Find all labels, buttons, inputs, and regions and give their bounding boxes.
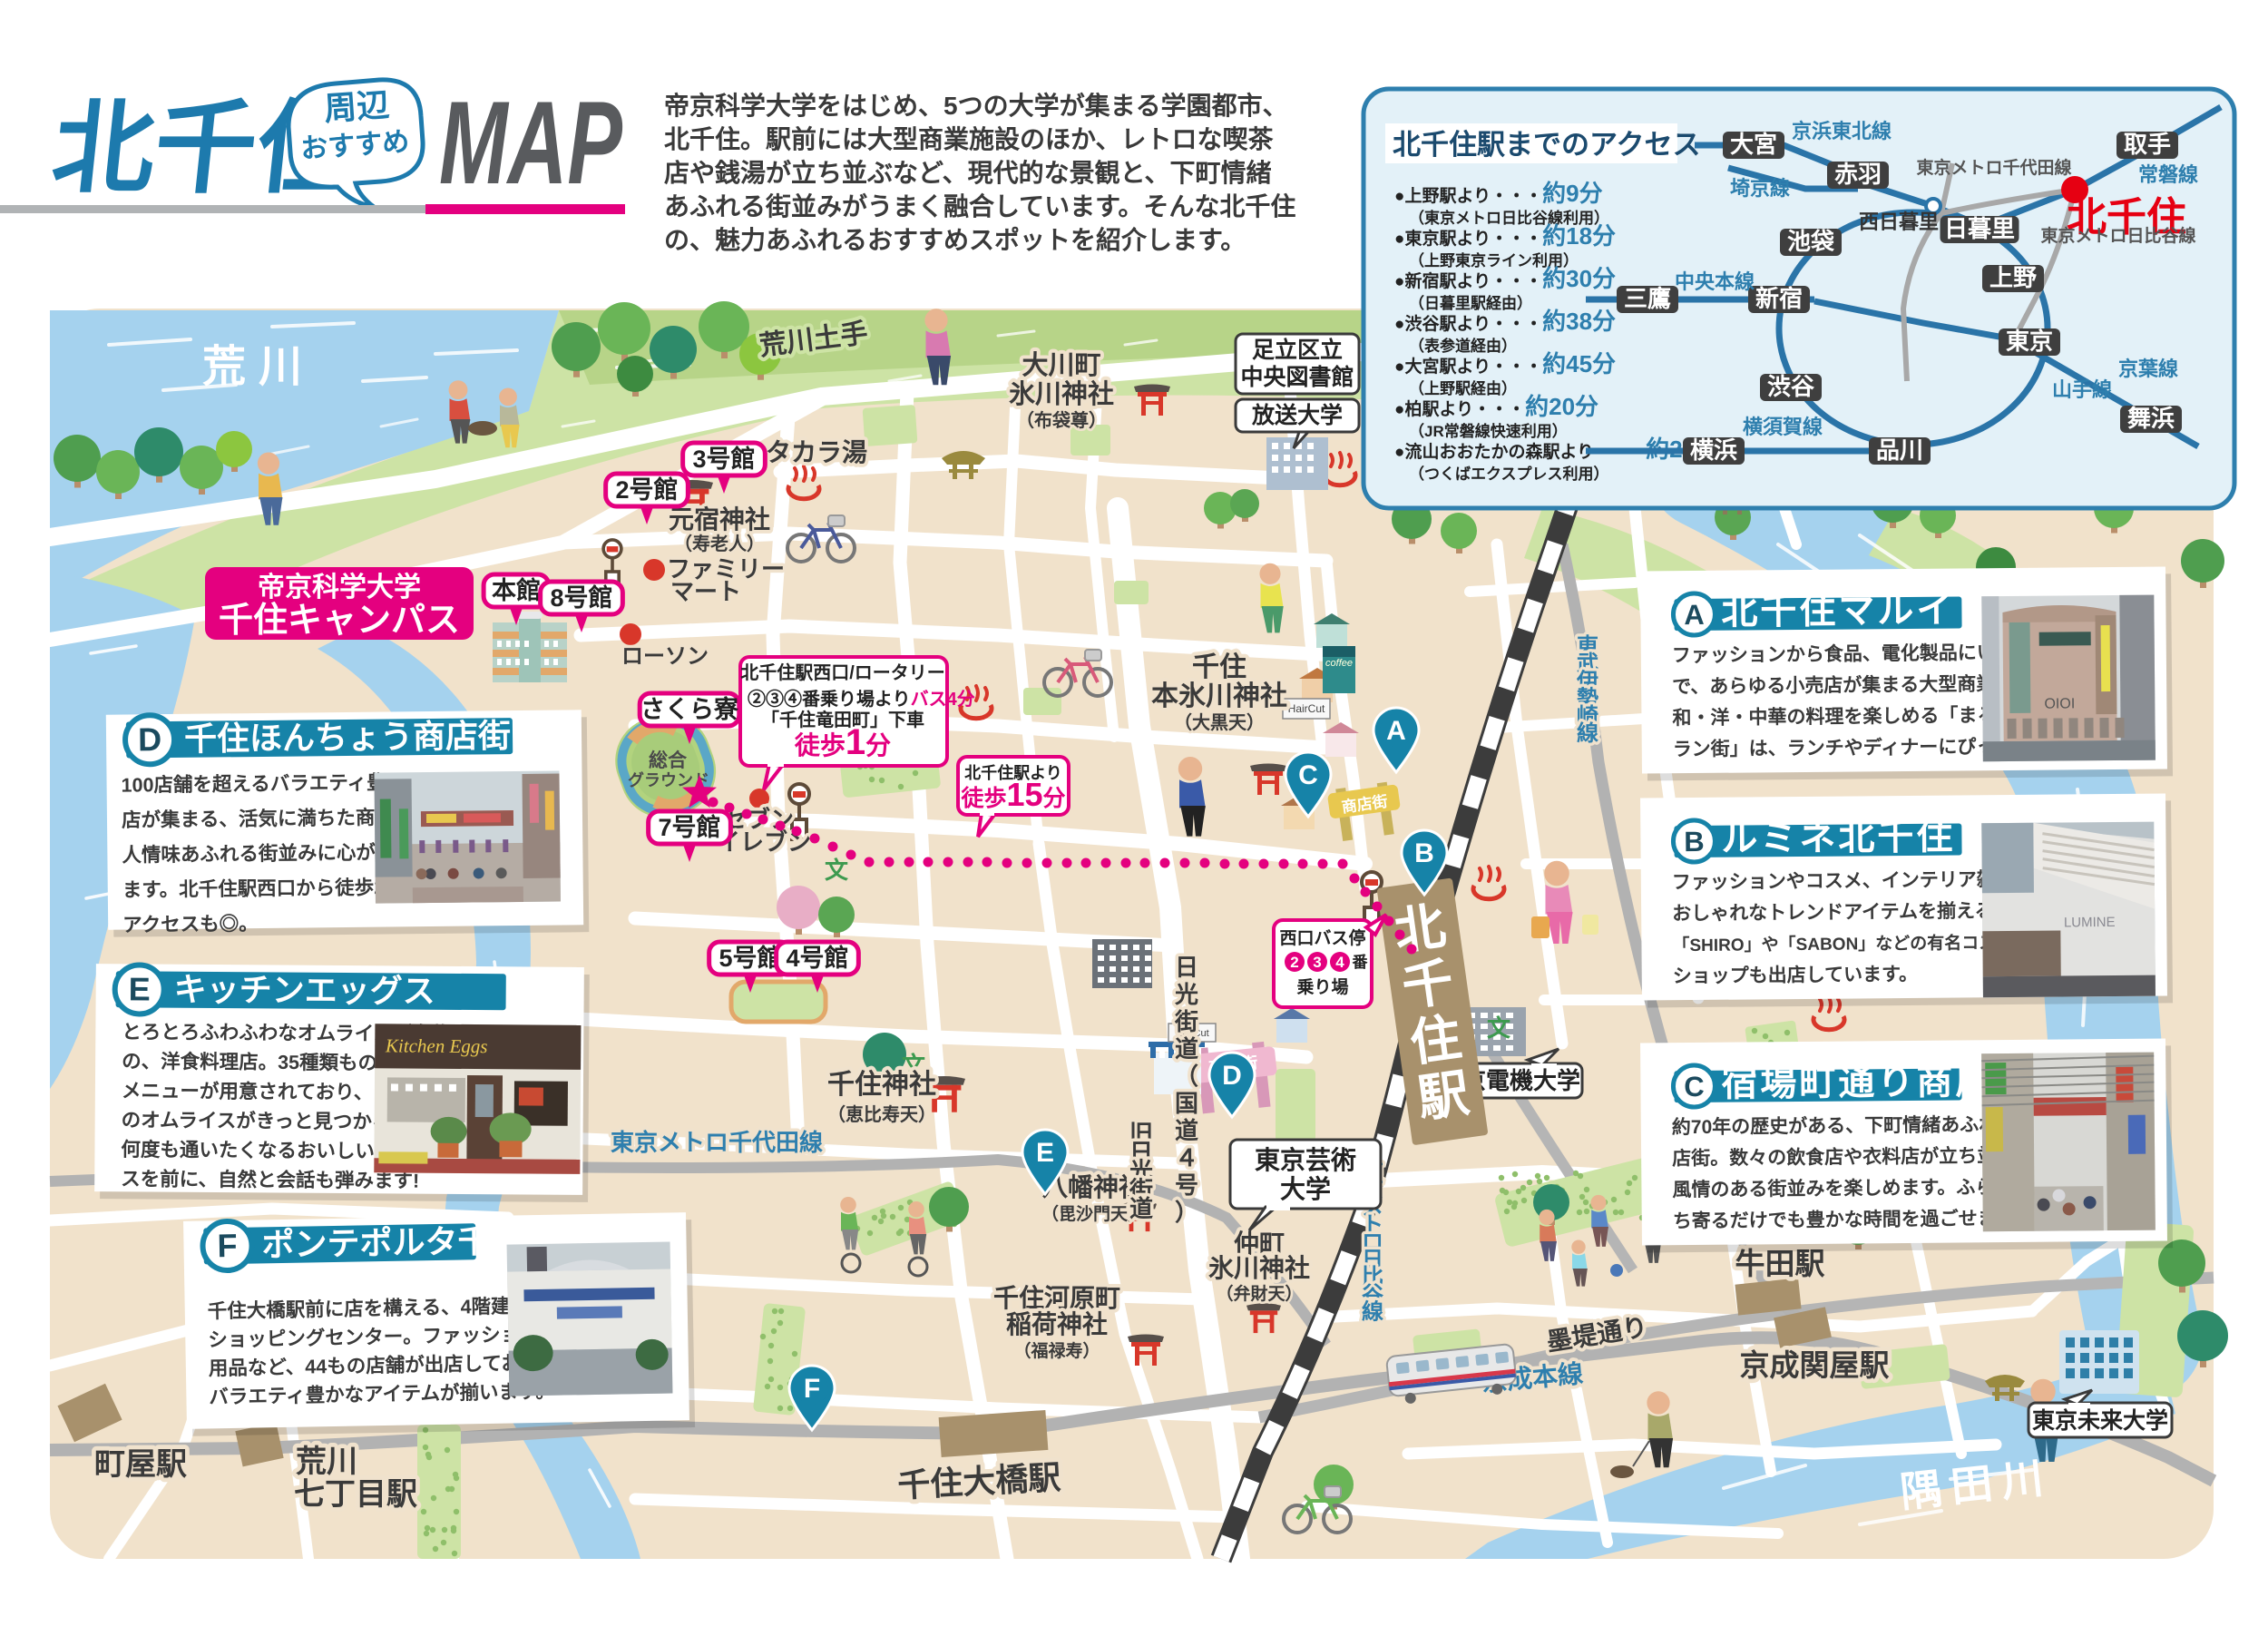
svg-text:北千住駅西口/ロータリー: 北千住駅西口/ロータリー: [740, 661, 945, 683]
svg-text:A: A: [1386, 716, 1406, 746]
svg-text:（福禄寿）: （福禄寿）: [1013, 1340, 1100, 1361]
svg-text:中央図書館: 中央図書館: [1240, 364, 1354, 390]
svg-text:F: F: [217, 1227, 238, 1264]
svg-text:MAP: MAP: [439, 76, 622, 209]
svg-text:品川: 品川: [1876, 436, 1923, 464]
svg-text:総合: 総合: [649, 750, 688, 771]
svg-text:（弁財天）: （弁財天）: [1216, 1283, 1302, 1304]
svg-text:東京芸術: 東京芸術: [1255, 1145, 1356, 1174]
svg-text:千住神社: 千住神社: [827, 1070, 936, 1100]
svg-text:稲荷神社: 稲荷神社: [1006, 1310, 1108, 1338]
svg-text:北千住マルイ: 北千住マルイ: [1721, 591, 1955, 632]
svg-text:あふれる街並みがうまく融合しています。そんな北千住: あふれる街並みがうまく融合しています。そんな北千住: [664, 191, 1295, 220]
svg-text:（つくばエクスプレス利用）: （つくばエクスプレス利用）: [1409, 465, 1609, 483]
svg-text:日暮里: 日暮里: [1944, 215, 2015, 242]
svg-text:マート: マート: [670, 578, 741, 605]
svg-text:大川町: 大川町: [1022, 350, 1100, 380]
svg-text:coffee: coffee: [1325, 658, 1353, 669]
svg-text:西日暮里: 西日暮里: [1859, 211, 1939, 233]
svg-text:千住河原町: 千住河原町: [993, 1283, 1120, 1312]
svg-text:A: A: [1684, 599, 1705, 631]
svg-text:赤羽: 赤羽: [1834, 161, 1882, 188]
svg-text:（恵比寿天）: （恵比寿天）: [827, 1103, 936, 1125]
svg-text:D: D: [1222, 1061, 1242, 1091]
svg-text:渋谷: 渋谷: [1767, 373, 1815, 400]
svg-text:千住ほんちょう商店街: 千住ほんちょう商店街: [184, 717, 511, 758]
svg-text:本館: 本館: [492, 576, 541, 604]
svg-text:大学: 大学: [1280, 1174, 1331, 1203]
svg-text:B: B: [1414, 838, 1434, 868]
svg-text:周辺: 周辺: [323, 86, 391, 128]
svg-text:七丁目駅: 七丁目駅: [294, 1477, 417, 1512]
svg-text:3: 3: [1313, 954, 1321, 971]
svg-text:3号館: 3号館: [692, 445, 755, 473]
svg-text:さくら寮: さくら寮: [640, 695, 739, 723]
svg-text:常磐線: 常磐線: [2138, 163, 2198, 186]
svg-text:E: E: [1036, 1138, 1054, 1168]
svg-text:氷川神社: 氷川神社: [1009, 379, 1114, 409]
svg-text:4号館: 4号館: [786, 944, 848, 972]
svg-text:足立区立: 足立区立: [1252, 337, 1343, 363]
svg-text:番: 番: [1352, 954, 1369, 971]
svg-text:7号館: 7号館: [658, 813, 720, 841]
svg-text:横須賀線: 横須賀線: [1743, 416, 1823, 438]
svg-text:店街。数々の飲食店や衣料店が立ち並び、: 店街。数々の飲食店や衣料店が立ち並び、: [1672, 1144, 2034, 1169]
svg-text:東京未来大学: 東京未来大学: [2032, 1407, 2168, 1434]
svg-text:荒川: 荒川: [296, 1445, 357, 1479]
svg-text:（表参道経由）: （表参道経由）: [1409, 337, 1517, 355]
svg-text:横浜: 横浜: [1690, 436, 1737, 464]
svg-text:ポンテポルタ千住: ポンテポルタ千住: [261, 1221, 523, 1263]
svg-text:2: 2: [1290, 954, 1298, 971]
svg-text:OIOI: OIOI: [2044, 696, 2075, 711]
svg-text:ローソン: ローソン: [621, 644, 709, 669]
svg-text:千住: 千住: [1192, 652, 1246, 682]
svg-text:キッチンエッグス: キッチンエッグス: [174, 971, 435, 1010]
svg-text:町屋駅: 町屋駅: [94, 1447, 187, 1482]
svg-text:日光街道（国道４号）: 日光街道（国道４号）: [1174, 954, 1198, 1226]
svg-text:店や銭湯が立ち並ぶなど、現代的な景観と、下町情緒: 店や銭湯が立ち並ぶなど、現代的な景観と、下町情緒: [664, 158, 1271, 187]
svg-text:B: B: [1684, 826, 1705, 857]
svg-text:東京メトロ千代田線: 東京メトロ千代田線: [1916, 157, 2071, 178]
svg-text:元宿神社: 元宿神社: [669, 505, 770, 534]
svg-text:京葉線: 京葉線: [2118, 358, 2178, 380]
svg-text:5号館: 5号館: [719, 944, 781, 972]
svg-text:京成関屋駅: 京成関屋駅: [1740, 1348, 1890, 1382]
svg-text:氷川神社: 氷川神社: [1208, 1254, 1310, 1282]
svg-text:東京: 東京: [2006, 328, 2053, 355]
svg-text:埼京線: 埼京線: [1730, 177, 1790, 200]
svg-text:E: E: [129, 970, 151, 1007]
svg-text:（寿老人）: （寿老人）: [674, 533, 765, 554]
svg-text:（日暮里駅経由）: （日暮里駅経由）: [1409, 294, 1532, 312]
svg-text:放送大学: 放送大学: [1251, 402, 1343, 428]
svg-text:東京メトロ日比谷線: 東京メトロ日比谷線: [2040, 225, 2195, 246]
svg-text:②③④番乗り場よりバス4分: ②③④番乗り場よりバス4分: [748, 689, 975, 710]
svg-text:帝京科学大学: 帝京科学大学: [258, 572, 421, 603]
svg-text:東京メトロ千代田線: 東京メトロ千代田線: [611, 1129, 823, 1156]
svg-text:C: C: [1298, 760, 1318, 790]
svg-text:2号館: 2号館: [615, 475, 678, 504]
svg-text:乗り場: 乗り場: [1296, 977, 1348, 997]
svg-text:HairCut: HairCut: [1288, 702, 1325, 715]
svg-text:「千住竜田町」下車: 「千住竜田町」下車: [761, 709, 924, 730]
svg-text:LUMINE: LUMINE: [2064, 915, 2116, 930]
svg-text:新宿: 新宿: [1755, 285, 1803, 312]
svg-text:西口バス停: 西口バス停: [1279, 927, 1365, 948]
svg-text:山手線: 山手線: [2052, 378, 2112, 401]
svg-text:C: C: [1684, 1071, 1705, 1102]
svg-text:8号館: 8号館: [550, 583, 612, 612]
svg-text:上野: 上野: [1989, 264, 2037, 291]
svg-text:文: 文: [825, 857, 849, 884]
svg-text:文: 文: [1487, 1014, 1511, 1042]
svg-text:取手: 取手: [2124, 131, 2171, 158]
svg-text:東武伊勢崎線: 東武伊勢崎線: [1576, 634, 1598, 746]
svg-text:4: 4: [1335, 954, 1344, 971]
svg-text:本氷川神社: 本氷川神社: [1151, 681, 1287, 711]
svg-text:タカラ湯: タカラ湯: [766, 438, 867, 466]
svg-text:中央本線: 中央本線: [1675, 270, 1755, 293]
svg-text:D: D: [138, 720, 161, 758]
svg-text:荒川: 荒川: [202, 343, 315, 391]
svg-text:（大黒天）: （大黒天）: [1174, 712, 1265, 733]
svg-text:ショップも出店しています。: ショップも出店しています。: [1673, 963, 1918, 986]
svg-text:三鷹: 三鷹: [1624, 285, 1671, 312]
svg-text:池袋: 池袋: [1787, 228, 1835, 255]
svg-text:（上野駅経由）: （上野駅経由）: [1409, 379, 1517, 397]
svg-text:帝京科学大学をはじめ、5つの大学が集まる学園都市、: 帝京科学大学をはじめ、5つの大学が集まる学園都市、: [664, 91, 1288, 120]
svg-text:約70年の歴史がある、下町情緒あふれる商: 約70年の歴史がある、下町情緒あふれる商: [1672, 1113, 2037, 1139]
svg-text:大宮: 大宮: [1730, 131, 1777, 158]
svg-text:舞浜: 舞浜: [2127, 405, 2175, 432]
svg-text:F: F: [804, 1374, 820, 1404]
svg-text:ルミネ北千住: ルミネ北千住: [1721, 818, 1955, 859]
svg-text:旧日光街道: 旧日光街道: [1129, 1120, 1153, 1222]
svg-text:北千住駅までのアクセス: 北千住駅までのアクセス: [1393, 129, 1700, 161]
svg-text:京浜東北線: 京浜東北線: [1792, 120, 1892, 142]
svg-text:の、魅力あふれるおすすめスポットを紹介します。: の、魅力あふれるおすすめスポットを紹介します。: [664, 225, 1246, 254]
svg-text:「SHIRO」や「SABON」などの有名コスメ: 「SHIRO」や「SABON」などの有名コスメ: [1672, 932, 2013, 955]
svg-text:千住キャンパス: 千住キャンパス: [219, 602, 460, 640]
svg-text:人情味あふれる街並みに心が和み: 人情味あふれる街並みに心が和み: [122, 840, 415, 866]
svg-text:（JR常磐線快速利用）: （JR常磐線快速利用）: [1409, 422, 1568, 440]
svg-text:北千住。駅前には大型商業施設のほか、レトロな喫茶: 北千住。駅前には大型商業施設のほか、レトロな喫茶: [664, 124, 1274, 153]
svg-text:牛田駅: 牛田駅: [1735, 1247, 1825, 1280]
svg-text:アクセスも◎。: アクセスも◎。: [122, 913, 259, 936]
svg-text:（布袋尊）: （布袋尊）: [1016, 409, 1107, 431]
svg-text:Kitchen Eggs: Kitchen Eggs: [385, 1034, 488, 1057]
